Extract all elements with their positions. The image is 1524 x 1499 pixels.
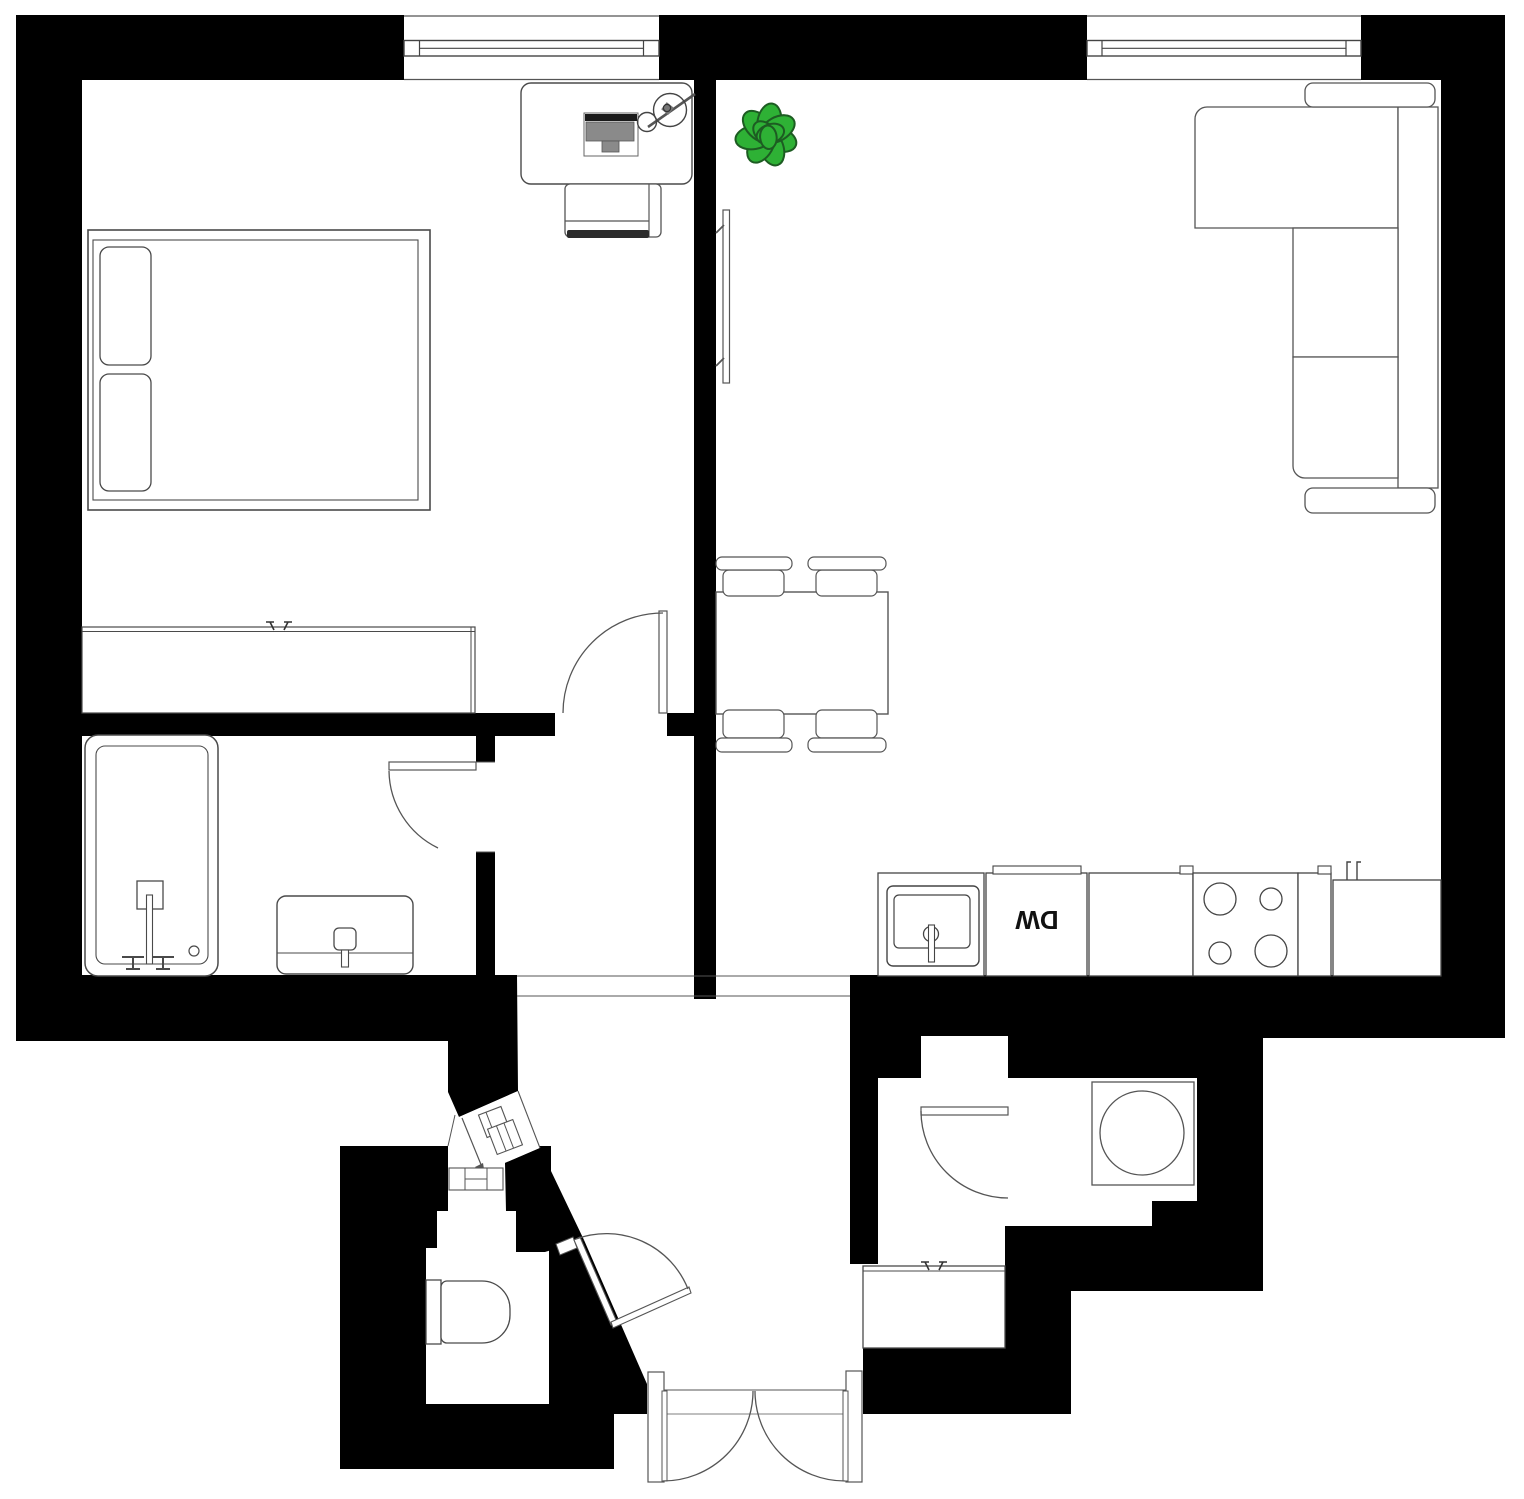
svg-text:DW: DW xyxy=(1015,905,1059,935)
